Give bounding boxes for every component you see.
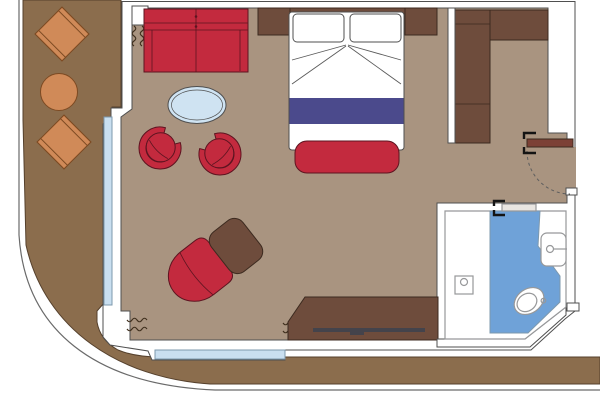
wall-end-cap	[567, 303, 579, 311]
pillow-left	[293, 14, 344, 42]
coffee-table	[168, 87, 226, 124]
foot-bench	[295, 141, 399, 173]
window-left	[104, 117, 112, 305]
window-bottom	[155, 350, 285, 359]
floor-plan	[0, 0, 600, 400]
doorway-floor	[566, 147, 576, 189]
wardrobe-top	[490, 10, 548, 40]
sofa	[144, 9, 248, 72]
bathroom-door-leaf	[502, 204, 536, 211]
bathroom	[437, 201, 567, 347]
tv-bar	[313, 328, 425, 332]
bed-runner-band	[290, 98, 404, 124]
sofa-button	[195, 15, 198, 18]
closet-partition-wall	[448, 8, 455, 143]
entry-door-leaf	[527, 139, 573, 147]
nightstand-right	[405, 8, 437, 35]
nightstand-left	[258, 8, 290, 35]
tv-bar-mount	[350, 332, 364, 335]
pillow-right	[350, 14, 401, 42]
sofa-button	[195, 25, 198, 28]
doorway-jamb-cap	[566, 188, 577, 195]
wardrobe-side	[455, 10, 490, 143]
double-bed	[289, 12, 404, 173]
deck-table	[41, 74, 78, 111]
